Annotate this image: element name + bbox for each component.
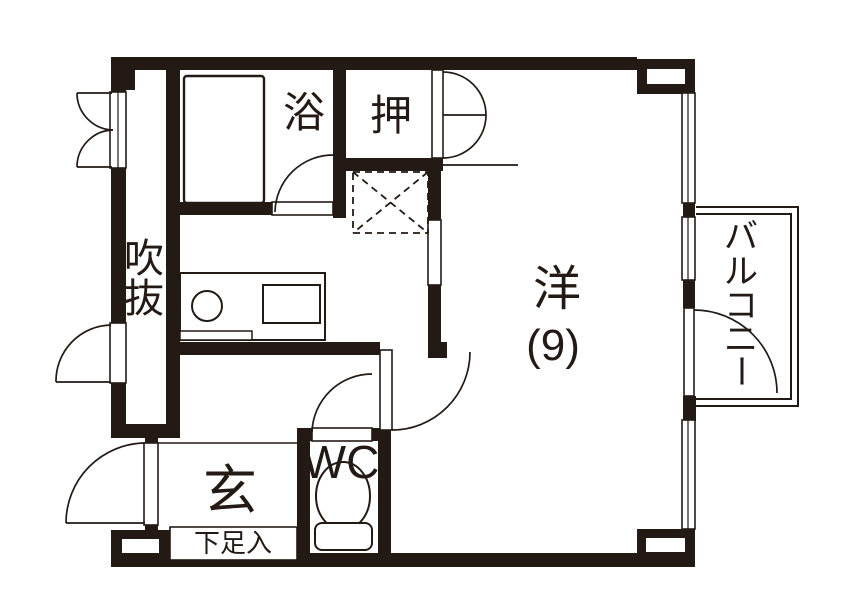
casement-mid-arc — [56, 325, 111, 382]
closet-door-leaf — [432, 70, 443, 158]
wall-wc-right — [378, 428, 391, 553]
pillar-bottom-right-inset — [646, 538, 685, 552]
pillar-top-right-inset — [647, 69, 685, 84]
room-label-void-char-2: 抜 — [124, 277, 164, 321]
room-label-balcony-char-1: バ — [724, 218, 758, 256]
bath-door-leaf — [272, 202, 333, 215]
floor-plan-drawing: 浴 押 洋 (9) 吹 抜 玄 WC 下足入 バ ル コ ニ ー — [0, 0, 842, 595]
room-label-void-char-1: 吹 — [124, 237, 164, 281]
bathtub — [184, 76, 264, 203]
floor-plan: 浴 押 洋 (9) 吹 抜 玄 WC 下足入 バ ル コ ニ ー — [0, 0, 842, 595]
wall-top — [113, 57, 637, 70]
wall-spine — [166, 57, 180, 438]
room-label-closet: 押 — [370, 92, 412, 139]
kitchen-pass-through — [428, 220, 441, 285]
western-room-door-arc — [392, 352, 470, 430]
room-label-shoebox: 下足入 — [194, 528, 272, 558]
room-label-western-size: (9) — [526, 321, 580, 370]
wall-right-block-a — [683, 203, 695, 217]
toilet-tank — [315, 523, 372, 550]
kitchen-counter-shelf — [180, 331, 252, 340]
room-label-balcony-char-5: ー — [721, 354, 759, 388]
pillar-bottom-left-inset — [122, 539, 159, 553]
room-label-wc: WC — [303, 436, 380, 488]
wall-left-corner-block — [113, 70, 135, 90]
refrigerator-space — [353, 172, 428, 233]
balcony-door-leaf — [684, 308, 694, 396]
wall-kitchen-east-upper — [428, 171, 441, 220]
wall-corridor-top — [166, 342, 380, 355]
room-label-balcony-char-3: コ — [724, 287, 758, 325]
wall-right-block-c — [683, 396, 696, 421]
wall-kitchen-east-lower — [428, 285, 441, 342]
wall-closet-bottom — [333, 158, 443, 171]
room-label-entrance: 玄 — [203, 461, 257, 521]
wall-bath-closet-divider — [333, 70, 346, 218]
entry-door-arc — [66, 443, 145, 523]
room-label-balcony-char-2: ル — [724, 253, 758, 291]
wall-entry-jamb-top — [145, 432, 158, 443]
casement-arc-lower — [77, 130, 113, 167]
kitchen-sink — [192, 291, 222, 321]
door-swings — [56, 72, 777, 523]
casement-arc-upper — [77, 93, 113, 130]
wall-junction-block — [428, 342, 447, 358]
entry-door-leaf — [144, 443, 158, 525]
western-room-door-leaf — [380, 350, 392, 430]
wall-right-block-b — [683, 280, 695, 308]
room-label-western: 洋 — [533, 263, 581, 316]
stove — [263, 285, 320, 323]
wc-door-arc — [312, 374, 372, 432]
opening-left-mid — [110, 323, 126, 383]
room-label-bath: 浴 — [283, 89, 325, 136]
